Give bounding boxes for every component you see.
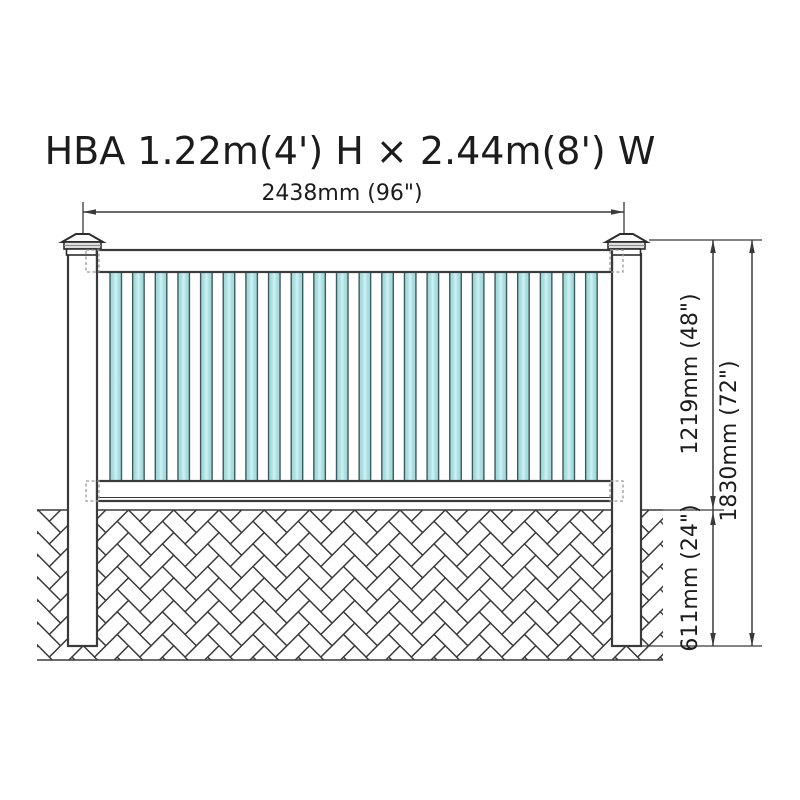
brick bbox=[162, 714, 196, 748]
brick bbox=[366, 680, 400, 714]
brick bbox=[298, 736, 332, 770]
brick bbox=[117, 714, 151, 748]
brick bbox=[660, 736, 694, 770]
brick bbox=[479, 668, 513, 702]
arrow-down-icon bbox=[710, 496, 716, 509]
arrow-down-icon bbox=[710, 633, 716, 646]
brick bbox=[660, 668, 694, 702]
brick bbox=[683, 725, 717, 759]
brick bbox=[4, 680, 38, 714]
brick bbox=[140, 680, 174, 714]
brick bbox=[343, 691, 377, 725]
brick bbox=[253, 714, 287, 748]
brick bbox=[185, 657, 219, 691]
brick bbox=[230, 657, 264, 691]
brick bbox=[434, 691, 468, 725]
brick bbox=[95, 702, 129, 736]
brick bbox=[27, 668, 61, 702]
brick bbox=[0, 555, 15, 589]
brick bbox=[683, 702, 717, 736]
brick bbox=[0, 668, 15, 702]
brick bbox=[389, 736, 423, 770]
brick bbox=[0, 510, 15, 544]
brick bbox=[411, 702, 445, 736]
arrow-up-icon bbox=[710, 240, 716, 253]
brick bbox=[321, 680, 355, 714]
brick bbox=[343, 668, 377, 702]
brick bbox=[208, 736, 242, 770]
picket bbox=[495, 271, 507, 481]
brick bbox=[95, 725, 129, 759]
width-dimension: 2438mm (96") bbox=[83, 181, 624, 233]
picket bbox=[314, 271, 326, 481]
brick bbox=[140, 657, 174, 691]
brick bbox=[117, 668, 151, 702]
brick bbox=[162, 736, 196, 770]
brick bbox=[638, 725, 672, 759]
brick bbox=[321, 657, 355, 691]
top-rail bbox=[97, 250, 612, 272]
picket bbox=[450, 271, 462, 481]
total-height-label: 1830mm (72") bbox=[717, 360, 742, 521]
arrow-up-icon bbox=[710, 512, 716, 525]
fence-diagram-svg: HBA 1.22m(4') H × 2.44m(8') W bbox=[0, 0, 800, 800]
brick bbox=[638, 657, 672, 691]
picket bbox=[337, 271, 349, 481]
brick bbox=[366, 725, 400, 759]
picket bbox=[291, 271, 303, 481]
picket bbox=[472, 271, 484, 481]
brick bbox=[253, 736, 287, 770]
picket bbox=[133, 271, 145, 481]
brick bbox=[298, 714, 332, 748]
brick bbox=[547, 702, 581, 736]
brick bbox=[615, 691, 649, 725]
brick bbox=[411, 657, 445, 691]
picket bbox=[404, 271, 416, 481]
brick bbox=[457, 680, 491, 714]
brick bbox=[230, 702, 264, 736]
brick bbox=[366, 657, 400, 691]
picket bbox=[359, 271, 371, 481]
brick bbox=[706, 646, 740, 680]
brick bbox=[706, 555, 740, 589]
width-dim-label: 2438mm (96") bbox=[261, 181, 422, 206]
brick bbox=[570, 714, 604, 748]
brick bbox=[0, 487, 15, 521]
brick bbox=[72, 691, 106, 725]
brick bbox=[230, 680, 264, 714]
brick bbox=[0, 465, 15, 499]
brick bbox=[570, 736, 604, 770]
brick bbox=[706, 714, 740, 748]
brick bbox=[457, 702, 491, 736]
fence-dimension-diagram: HBA 1.22m(4') H × 2.44m(8') W bbox=[0, 0, 800, 800]
brick bbox=[49, 657, 83, 691]
brick bbox=[253, 668, 287, 702]
brick bbox=[457, 657, 491, 691]
picket bbox=[518, 271, 530, 481]
arrow-right-icon bbox=[611, 209, 624, 215]
brick bbox=[615, 668, 649, 702]
brick bbox=[570, 668, 604, 702]
brick bbox=[502, 702, 536, 736]
brick bbox=[638, 476, 672, 510]
brick bbox=[524, 668, 558, 702]
brick bbox=[638, 453, 672, 487]
brick bbox=[162, 668, 196, 702]
brick bbox=[389, 714, 423, 748]
brick bbox=[502, 725, 536, 759]
brick bbox=[479, 714, 513, 748]
brick bbox=[27, 442, 61, 476]
brick bbox=[706, 601, 740, 635]
brick bbox=[4, 476, 38, 510]
brick bbox=[276, 657, 310, 691]
brick bbox=[4, 612, 38, 646]
brick bbox=[638, 702, 672, 736]
brick bbox=[276, 680, 310, 714]
brick bbox=[4, 634, 38, 668]
brick bbox=[4, 453, 38, 487]
brick bbox=[27, 714, 61, 748]
brick bbox=[592, 657, 626, 691]
brick bbox=[0, 623, 15, 657]
brick bbox=[479, 736, 513, 770]
brick bbox=[4, 657, 38, 691]
brick bbox=[389, 691, 423, 725]
brick bbox=[706, 691, 740, 725]
brick bbox=[706, 736, 740, 770]
picket bbox=[201, 271, 213, 481]
brick bbox=[502, 680, 536, 714]
brick bbox=[706, 623, 740, 657]
brick bbox=[547, 725, 581, 759]
brick bbox=[208, 668, 242, 702]
brick bbox=[706, 668, 740, 702]
brick bbox=[140, 725, 174, 759]
brick bbox=[366, 702, 400, 736]
brick bbox=[0, 419, 15, 453]
brick bbox=[276, 702, 310, 736]
brick bbox=[27, 419, 61, 453]
brick bbox=[638, 431, 672, 465]
picket bbox=[178, 271, 190, 481]
brick bbox=[434, 668, 468, 702]
brick bbox=[0, 533, 15, 567]
brick bbox=[0, 601, 15, 635]
picket bbox=[540, 271, 552, 481]
brick bbox=[343, 736, 377, 770]
brick bbox=[298, 691, 332, 725]
brick bbox=[72, 668, 106, 702]
brick bbox=[411, 725, 445, 759]
brick bbox=[4, 544, 38, 578]
brick bbox=[683, 680, 717, 714]
brick bbox=[253, 691, 287, 725]
brick bbox=[162, 691, 196, 725]
brick bbox=[27, 465, 61, 499]
pickets bbox=[110, 271, 597, 481]
left-post bbox=[68, 254, 97, 646]
brick bbox=[343, 714, 377, 748]
brick bbox=[95, 657, 129, 691]
brick bbox=[0, 714, 15, 748]
brick bbox=[185, 725, 219, 759]
brick bbox=[524, 691, 558, 725]
picket bbox=[246, 271, 258, 481]
brick bbox=[49, 680, 83, 714]
brick bbox=[230, 725, 264, 759]
panel-height-label: 1219mm (48") bbox=[678, 293, 703, 454]
buried-depth-label: 611mm (24") bbox=[678, 504, 703, 651]
brick bbox=[4, 431, 38, 465]
brick bbox=[592, 725, 626, 759]
brick bbox=[0, 442, 15, 476]
brick bbox=[479, 691, 513, 725]
brick bbox=[4, 589, 38, 623]
brick bbox=[660, 714, 694, 748]
brick bbox=[276, 725, 310, 759]
brick bbox=[4, 499, 38, 533]
brick bbox=[434, 714, 468, 748]
brick bbox=[49, 725, 83, 759]
brick bbox=[592, 702, 626, 736]
brick bbox=[389, 668, 423, 702]
brick bbox=[570, 691, 604, 725]
brick bbox=[592, 680, 626, 714]
brick bbox=[0, 578, 15, 612]
arrow-up-icon bbox=[749, 240, 755, 253]
picket bbox=[427, 271, 439, 481]
picket bbox=[223, 271, 235, 481]
brick bbox=[140, 702, 174, 736]
brick bbox=[547, 680, 581, 714]
brick bbox=[706, 533, 740, 567]
brick bbox=[117, 736, 151, 770]
brick bbox=[4, 702, 38, 736]
brick bbox=[660, 691, 694, 725]
picket bbox=[269, 271, 281, 481]
brick bbox=[72, 736, 106, 770]
brick bbox=[524, 736, 558, 770]
brick bbox=[298, 668, 332, 702]
brick bbox=[683, 657, 717, 691]
brick bbox=[27, 691, 61, 725]
brick bbox=[434, 736, 468, 770]
brick bbox=[706, 578, 740, 612]
brick bbox=[0, 691, 15, 725]
brick bbox=[502, 657, 536, 691]
brick bbox=[660, 465, 694, 499]
brick bbox=[0, 646, 15, 680]
arrow-down-icon bbox=[749, 633, 755, 646]
brick bbox=[185, 680, 219, 714]
brick bbox=[524, 714, 558, 748]
picket bbox=[586, 271, 598, 481]
brick bbox=[4, 521, 38, 555]
brick bbox=[457, 725, 491, 759]
brick bbox=[638, 680, 672, 714]
brick bbox=[95, 680, 129, 714]
brick bbox=[4, 725, 38, 759]
picket bbox=[563, 271, 575, 481]
brick bbox=[683, 453, 717, 487]
brick bbox=[49, 702, 83, 736]
brick bbox=[4, 567, 38, 601]
brick bbox=[208, 714, 242, 748]
brick bbox=[208, 691, 242, 725]
brick bbox=[117, 691, 151, 725]
brick bbox=[411, 680, 445, 714]
arrow-left-icon bbox=[83, 209, 96, 215]
brick bbox=[27, 736, 61, 770]
brick bbox=[321, 725, 355, 759]
picket bbox=[382, 271, 394, 481]
brick bbox=[321, 702, 355, 736]
picket bbox=[155, 271, 167, 481]
diagram-title: HBA 1.22m(4') H × 2.44m(8') W bbox=[45, 129, 656, 173]
picket bbox=[110, 271, 122, 481]
brick bbox=[615, 714, 649, 748]
brick bbox=[0, 736, 15, 770]
brick bbox=[185, 702, 219, 736]
brick bbox=[547, 657, 581, 691]
right-post bbox=[612, 254, 641, 646]
brick bbox=[615, 736, 649, 770]
brick bbox=[72, 714, 106, 748]
